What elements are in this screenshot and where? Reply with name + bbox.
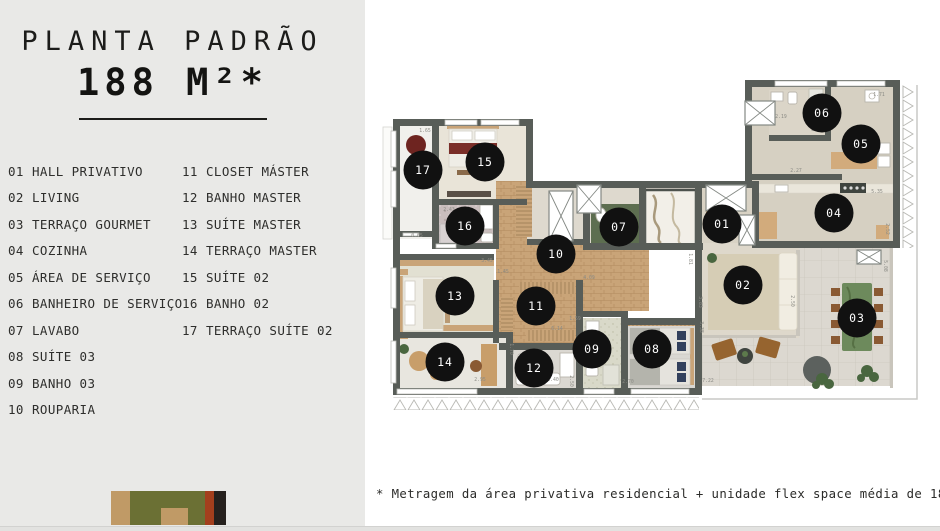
legend-item-11: 11CLOSET MÁSTER — [182, 158, 358, 185]
room-marker-09: 09 — [573, 330, 612, 369]
toilet — [481, 233, 493, 242]
legend-number: 17 — [182, 323, 206, 338]
burner — [843, 186, 846, 189]
room-marker-10: 10 — [537, 235, 576, 274]
wardrobe — [501, 297, 513, 331]
legend-number: 03 — [8, 217, 32, 232]
legend-item-08: 08SUÍTE 03 — [8, 344, 180, 371]
pillow — [677, 373, 686, 382]
logo-stripe-rust — [205, 491, 214, 525]
dimension-label: 1.59 — [569, 316, 581, 322]
legend-item-06: 06BANHEIRO DE SERVIÇO — [8, 291, 180, 318]
plant — [399, 344, 409, 354]
legend-item-05: 05ÁREA DE SERVIÇO — [8, 264, 180, 291]
dimension-label: 2.19 — [775, 114, 787, 120]
legend-number: 08 — [8, 349, 32, 364]
legend-label: HALL PRIVATIVO — [32, 164, 143, 179]
dimension-label: 3.83 — [697, 296, 703, 308]
dimension-label: 5.08 — [882, 260, 888, 272]
dimension-label: 1.65 — [419, 128, 431, 134]
legend-number: 12 — [182, 190, 206, 205]
room-marker-11: 11 — [517, 287, 556, 326]
pillow — [677, 342, 686, 351]
legend-item-17: 17TERRAÇO SUÍTE 02 — [182, 317, 358, 344]
legend-item-07: 07LAVABO — [8, 317, 180, 344]
room-marker-14: 14 — [426, 343, 465, 382]
dimension-label: 0.65 — [411, 233, 423, 239]
legend-number: 15 — [182, 270, 206, 285]
legend-item-04: 04COZINHA — [8, 238, 180, 265]
dimension-label: 1.45 — [497, 269, 509, 275]
appliance — [878, 156, 890, 167]
terrace-rail — [890, 248, 893, 388]
sofa — [779, 253, 797, 330]
dimension-label: 2.52 — [884, 223, 890, 235]
svg-text:14: 14 — [437, 355, 453, 369]
room-marker-05: 05 — [842, 125, 881, 164]
legend-column1: 01HALL PRIVATIVO02LIVING03TERRAÇO GOURME… — [8, 158, 180, 423]
dimension-label: 1.71 — [873, 92, 885, 98]
svg-text:07: 07 — [611, 220, 627, 234]
room-marker-04: 04 — [815, 194, 854, 233]
svg-text:11: 11 — [528, 299, 544, 313]
room-marker-07: 07 — [600, 208, 639, 247]
room-marker-03: 03 — [838, 299, 877, 338]
floor-plan: 1.652.430.653.451.452.192.621.712.275.35… — [379, 73, 935, 435]
dimension-label: 3.45 — [481, 258, 493, 264]
page-title: PLANTA PADRÃO — [20, 26, 325, 57]
legend-label: TERRAÇO MASTER — [206, 243, 317, 258]
legend-number: 04 — [8, 243, 32, 258]
pillow — [475, 131, 495, 140]
svg-text:16: 16 — [457, 219, 473, 233]
svg-text:09: 09 — [584, 342, 600, 356]
dimension-label: 2.70 — [622, 379, 634, 385]
dimension-label: 5.35 — [871, 189, 883, 195]
glass-divider-2 — [702, 335, 796, 338]
tv-console — [447, 191, 491, 197]
floorplan-panel: 1.652.430.653.451.452.192.621.712.275.35… — [365, 0, 940, 526]
desk-chair — [470, 360, 482, 372]
legend-label: LIVING — [32, 190, 80, 205]
plant — [742, 351, 748, 357]
legend-item-16: 16BANHO 02 — [182, 291, 358, 318]
legend-label: BANHEIRO DE SERVIÇO — [32, 296, 183, 311]
legend-label: TERRAÇO SUÍTE 02 — [206, 323, 333, 338]
svg-text:06: 06 — [814, 106, 830, 120]
dimension-label: 1.81 — [687, 253, 693, 265]
logo-stripe-tan — [111, 491, 130, 525]
legend-label: BANHO 02 — [206, 296, 269, 311]
svg-text:04: 04 — [826, 206, 842, 220]
svg-text:05: 05 — [853, 137, 869, 151]
toilet — [788, 92, 797, 104]
footnote: * Metragem da área privativa residencial… — [376, 487, 940, 501]
legend-label: CLOSET MÁSTER — [206, 164, 309, 179]
room-marker-13: 13 — [436, 277, 475, 316]
legend-label: COZINHA — [32, 243, 87, 258]
dimension-label: 2.95 — [474, 377, 486, 383]
shower — [603, 365, 619, 385]
svg-text:10: 10 — [548, 247, 564, 261]
legend-number: 13 — [182, 217, 206, 232]
legend-number: 01 — [8, 164, 32, 179]
svg-text:08: 08 — [644, 342, 660, 356]
room-marker-16: 16 — [446, 207, 485, 246]
dimension-label: 2.50 — [789, 295, 795, 307]
legend-label: BANHO MASTER — [206, 190, 301, 205]
room-marker-12: 12 — [515, 349, 554, 388]
room-marker-01: 01 — [703, 205, 742, 244]
marble-panel — [645, 190, 696, 246]
room-marker-06: 06 — [803, 94, 842, 133]
dimension-label: 2.27 — [790, 168, 802, 174]
vanity — [560, 353, 574, 377]
legend-label: LAVABO — [32, 323, 80, 338]
title-underline — [79, 118, 267, 120]
legend-number: 05 — [8, 270, 32, 285]
dimension-label: 1.70 — [508, 343, 514, 355]
legend-number: 14 — [182, 243, 206, 258]
legend-item-01: 01HALL PRIVATIVO — [8, 158, 180, 185]
pillow — [677, 362, 686, 371]
rouparia-shelves — [516, 185, 532, 237]
dimension-label: 3.38 — [698, 321, 704, 333]
pillow — [452, 131, 472, 140]
legend-number: 10 — [8, 402, 32, 417]
legend-item-15: 15SUÍTE 02 — [182, 264, 358, 291]
room-marker-17: 17 — [404, 151, 443, 190]
legend-number: 09 — [8, 376, 32, 391]
dimension-label: 2.50 — [568, 375, 574, 387]
burner — [849, 186, 852, 189]
kitchen-sink — [775, 185, 788, 192]
svg-text:03: 03 — [849, 311, 865, 325]
svg-text:13: 13 — [447, 289, 463, 303]
room-marker-02: 02 — [724, 266, 763, 305]
duct — [857, 250, 881, 264]
wood-border-top — [397, 260, 494, 266]
legend-item-09: 09BANHO 03 — [8, 370, 180, 397]
legend-label: ROUPARIA — [32, 402, 95, 417]
burner — [855, 186, 858, 189]
bottom-divider — [0, 526, 940, 531]
burner — [861, 186, 864, 189]
legend-label: TERRAÇO GOURMET — [32, 217, 151, 232]
logo-notch — [161, 508, 188, 525]
legend-item-10: 10ROUPARIA — [8, 397, 180, 424]
legend-number: 11 — [182, 164, 206, 179]
brand-logo — [111, 491, 226, 525]
legend-column2: 11CLOSET MÁSTER12BANHO MASTER13SUÍTE MAS… — [182, 158, 358, 344]
duct — [745, 101, 775, 125]
legend-item-12: 12BANHO MASTER — [182, 185, 358, 212]
dimension-label: 4.09 — [583, 275, 595, 281]
logo-stripe-black — [214, 491, 226, 525]
legend-number: 07 — [8, 323, 32, 338]
svg-text:02: 02 — [735, 278, 751, 292]
legend-item-03: 03TERRAÇO GOURMET — [8, 211, 180, 238]
headboard — [690, 328, 694, 385]
legend-label: BANHO 03 — [32, 376, 95, 391]
sink — [771, 92, 783, 101]
legend-item-14: 14TERRAÇO MASTER — [182, 238, 358, 265]
legend-number: 16 — [182, 296, 206, 311]
area-title: 188 M²* — [20, 61, 325, 104]
legend-label: SUÍTE 02 — [206, 270, 269, 285]
legend-item-13: 13SUÍTE MASTER — [182, 211, 358, 238]
svg-text:17: 17 — [415, 163, 431, 177]
legend-number: 02 — [8, 190, 32, 205]
legend-label: ÁREA DE SERVIÇO — [32, 270, 151, 285]
logo-stripe-olive — [130, 491, 205, 525]
duct — [739, 215, 755, 245]
legend-number: 06 — [8, 296, 32, 311]
pillow — [405, 305, 415, 325]
plant — [707, 253, 717, 263]
svg-text:01: 01 — [714, 217, 730, 231]
dimension-label: 6.14 — [551, 326, 563, 332]
kitchen-island — [756, 212, 777, 239]
pillow — [405, 281, 415, 301]
room-marker-08: 08 — [633, 330, 672, 369]
shaft — [577, 185, 601, 213]
pillow — [677, 331, 686, 340]
legend-label: SUÍTE MASTER — [206, 217, 301, 232]
svg-text:12: 12 — [526, 361, 542, 375]
svg-text:15: 15 — [477, 155, 493, 169]
shaft — [549, 191, 573, 241]
title-block: PLANTA PADRÃO 188 M²* — [20, 26, 325, 120]
dimension-label: 7.22 — [702, 378, 714, 384]
legend-item-02: 02LIVING — [8, 185, 180, 212]
legend-label: SUÍTE 03 — [32, 349, 95, 364]
room-marker-15: 15 — [466, 143, 505, 182]
info-panel: PLANTA PADRÃO 188 M²* 01HALL PRIVATIVO02… — [0, 0, 365, 531]
